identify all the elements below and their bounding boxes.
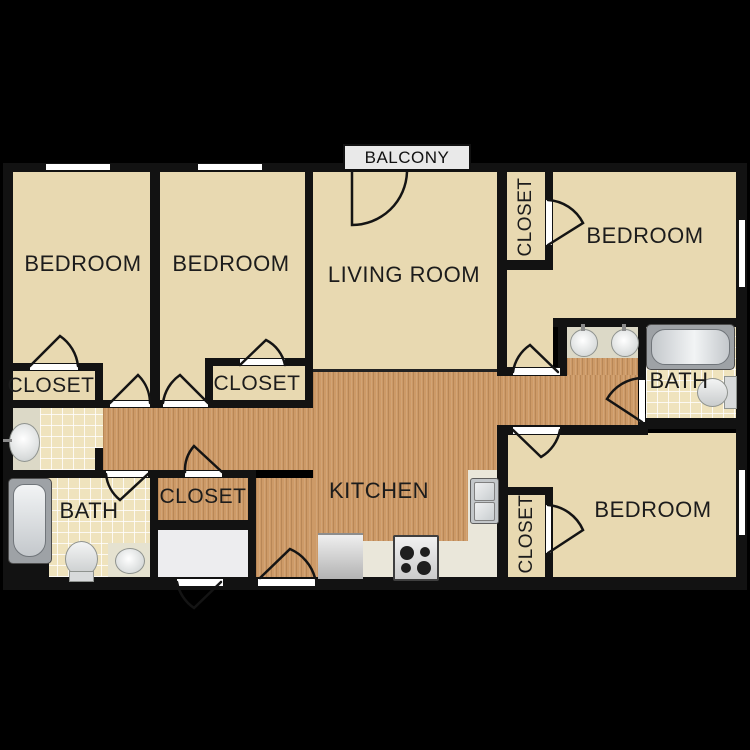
floor-plan: BALCONY BEDROOM BEDROOM LIVING ROOM BEDR… [0,0,750,750]
door-threshold [546,505,551,553]
faucet-icon [581,324,585,331]
room-label-bedroom-bottom-right: BEDROOM [594,497,711,523]
door-threshold [546,200,552,245]
room-label-bath-left: BATH [59,498,118,524]
door-threshold [258,579,315,586]
wall [150,520,256,530]
bathtub-basin [13,484,46,557]
room-label-closet-top-right: CLOSET [515,177,537,256]
sink [9,423,40,462]
room-label-living-room: LIVING ROOM [328,262,480,288]
hallway-floor [103,408,313,470]
room-label-closet-top-left: CLOSET [7,374,94,398]
door-threshold [513,427,560,434]
faucet-icon [622,324,626,331]
corridor-right-floor [500,373,638,425]
wall [3,577,747,590]
wall [150,163,160,408]
room-label-closet-hall: CLOSET [159,485,246,509]
door-threshold [110,401,150,407]
faucet-icon [3,439,12,442]
dishwasher [318,533,363,579]
door-threshold [30,364,78,370]
wall [95,363,103,408]
wall [3,400,313,408]
balcony-label: BALCONY [343,144,471,171]
room-label-bath-right: BATH [649,368,708,394]
bedroom-top-right-wing [507,265,553,375]
kitchen-sink-basin [474,502,495,521]
door-threshold [639,380,645,422]
burner-icon [420,547,430,557]
window [198,164,262,170]
sink [570,329,598,357]
bathtub-basin [651,329,730,365]
burner-icon [400,546,414,560]
burner-icon [401,563,411,573]
kitchen-sink-basin [474,482,495,501]
kitchen-floor-lower [256,478,314,577]
toilet-tank [69,571,94,582]
door-threshold [513,368,560,375]
burner-icon [417,561,431,575]
living-room-edge [313,369,497,372]
window [739,470,745,535]
room-label-closet-bottom-right: CLOSET [516,494,538,573]
wall [638,318,646,382]
sink [115,548,145,574]
door-threshold [106,471,148,477]
vanity-left-tile [40,408,103,470]
vanity-right-floor [567,355,638,375]
window [739,220,745,287]
room-label-bedroom-top-right: BEDROOM [586,223,703,249]
room-label-closet-bedroom2: CLOSET [213,372,300,396]
door-threshold [163,401,208,407]
sink [611,329,639,357]
door-threshold [185,471,222,477]
room-label-bedroom-top-middle: BEDROOM [172,251,289,277]
room-label-bedroom-top-left: BEDROOM [24,251,141,277]
utility-room [158,530,250,577]
wall [305,163,313,408]
room-label-kitchen: KITCHEN [329,478,429,504]
wall [497,260,553,270]
door-threshold [177,579,223,586]
door-threshold [240,359,285,365]
wall [638,418,746,429]
balcony-text: BALCONY [365,148,450,168]
window [46,164,110,170]
stove [393,535,439,581]
